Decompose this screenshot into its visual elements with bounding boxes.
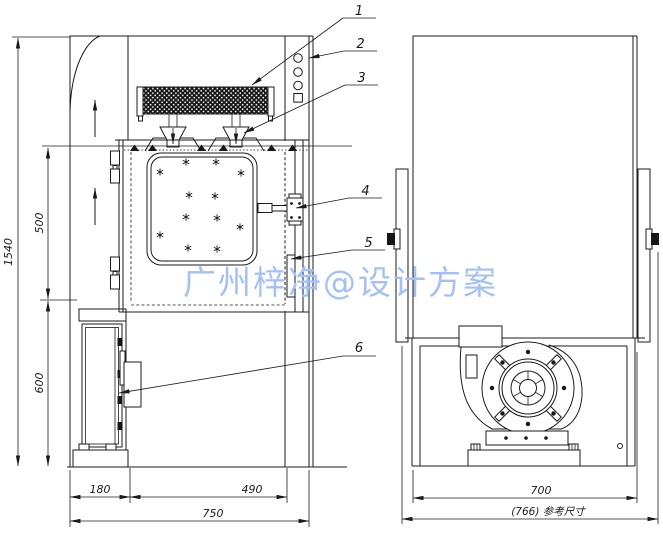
dim-total-width: 750 — [203, 507, 224, 520]
blower-duct — [459, 326, 502, 347]
callout-4-label: 4 — [361, 184, 369, 199]
blower-assembly — [459, 326, 623, 466]
electrical-box — [124, 362, 141, 407]
latch-knob-right[interactable] — [651, 233, 659, 245]
callout-2-label: 2 — [356, 37, 364, 52]
latch-knob-left[interactable] — [387, 233, 395, 245]
callout-6: 6 — [119, 341, 376, 393]
blower-base — [468, 450, 580, 466]
door-hinges — [111, 151, 120, 289]
switch-button[interactable] — [294, 94, 303, 103]
dim-left-width: 180 — [90, 483, 111, 496]
indicator-button-1[interactable] — [294, 54, 303, 63]
callout-3-label: 3 — [357, 71, 365, 86]
air-nozzles — [130, 127, 297, 151]
lower-cabinet — [73, 309, 141, 467]
cabinet-base — [73, 450, 128, 467]
callout-5-label: 5 — [364, 236, 372, 251]
dim-door-width: 490 — [242, 483, 263, 496]
callout-2: 2 — [309, 37, 377, 58]
dim-depth: 700 — [531, 484, 552, 497]
indicator-button-2[interactable] — [294, 68, 303, 77]
callouts: 1 2 3 4 5 — [119, 4, 385, 393]
callout-1-label: 1 — [355, 4, 363, 19]
dim-upper-height: 500 — [33, 213, 46, 234]
door-window — [147, 153, 257, 265]
hepa-filter-assembly — [137, 87, 274, 127]
dim-reference: (766) 参考尺寸 — [511, 506, 586, 518]
door-handle[interactable] — [258, 194, 303, 225]
technical-drawing-canvas: 1540 500 600 180 490 750 1 — [0, 0, 663, 535]
nameplate — [466, 355, 477, 378]
callout-6-label: 6 — [355, 341, 363, 356]
watermark: 广州梓净@设计方案 — [183, 256, 498, 304]
indicator-button-3[interactable] — [294, 81, 303, 90]
control-panel — [294, 54, 303, 102]
hepa-filter — [143, 87, 268, 114]
dim-total-height: 1540 — [2, 238, 15, 266]
dim-lower-height: 600 — [33, 373, 46, 394]
